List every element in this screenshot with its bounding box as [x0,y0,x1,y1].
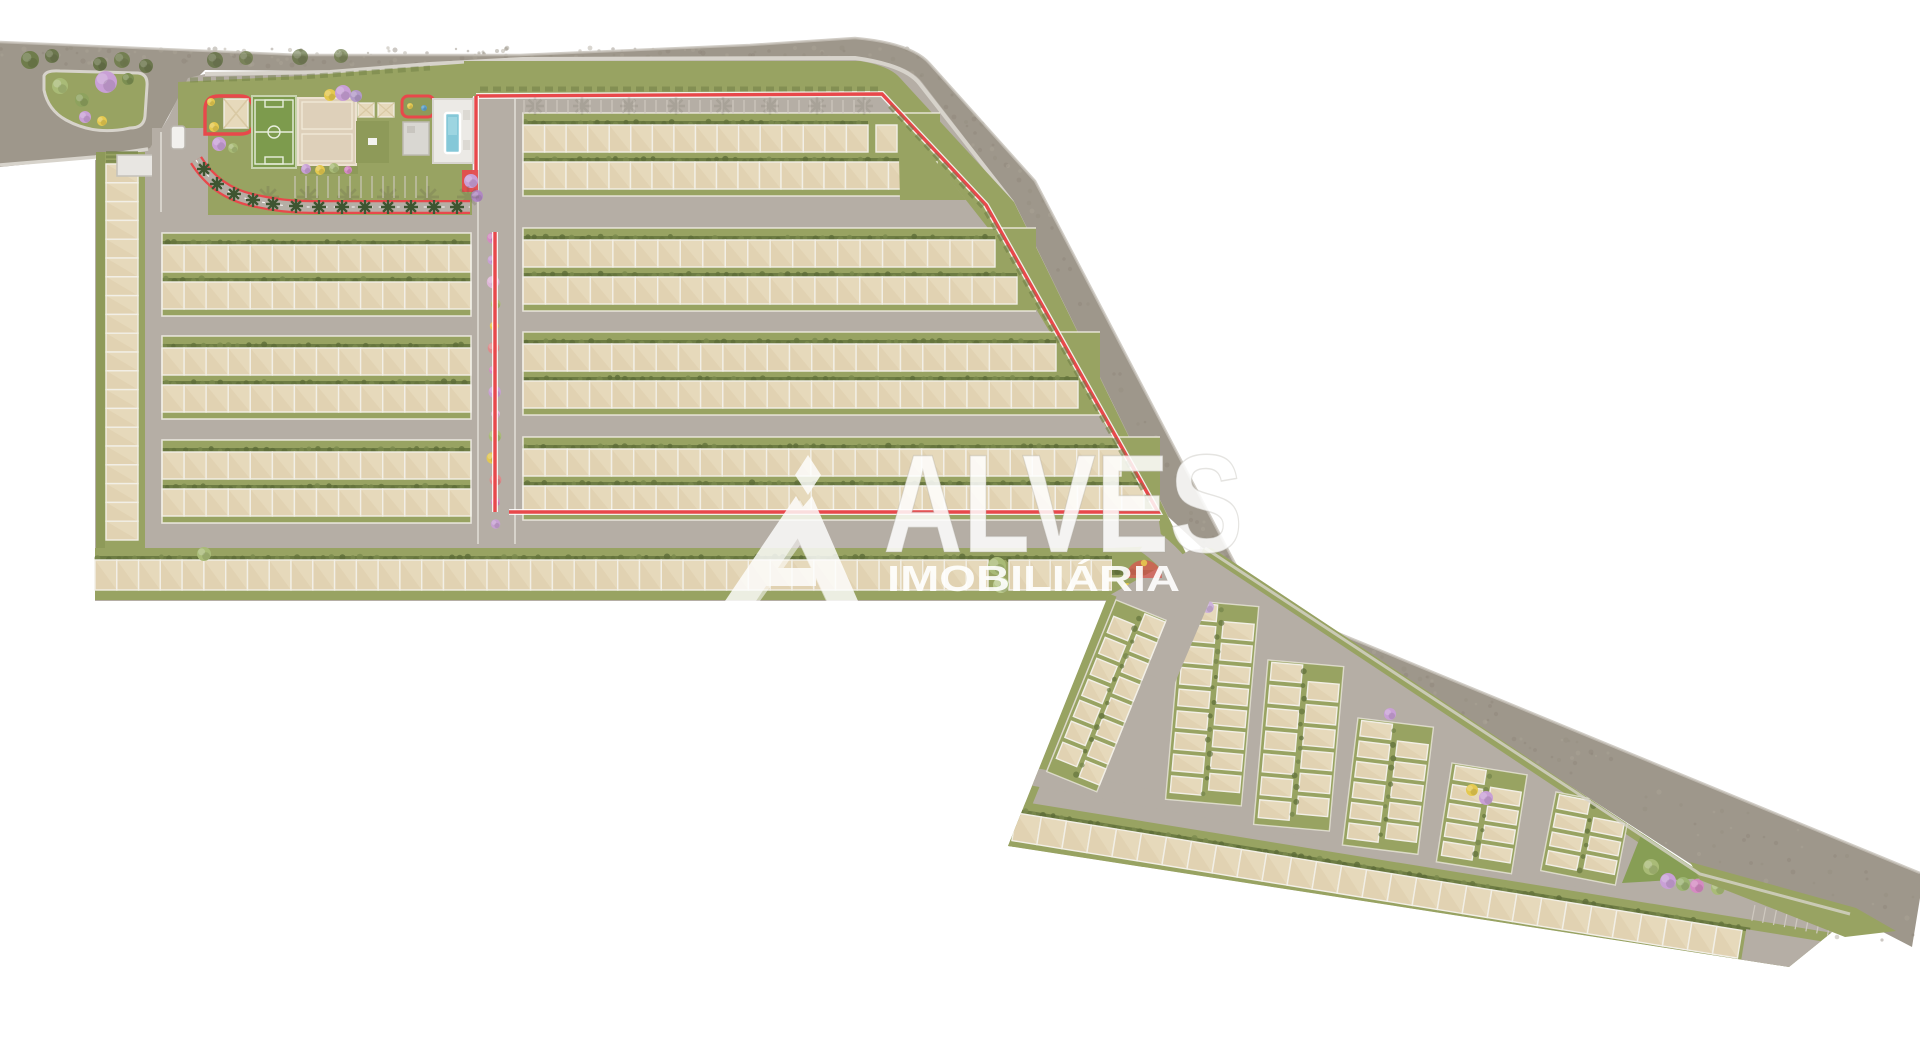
svg-text:IMOBILIÁRIA: IMOBILIÁRIA [887,558,1180,599]
